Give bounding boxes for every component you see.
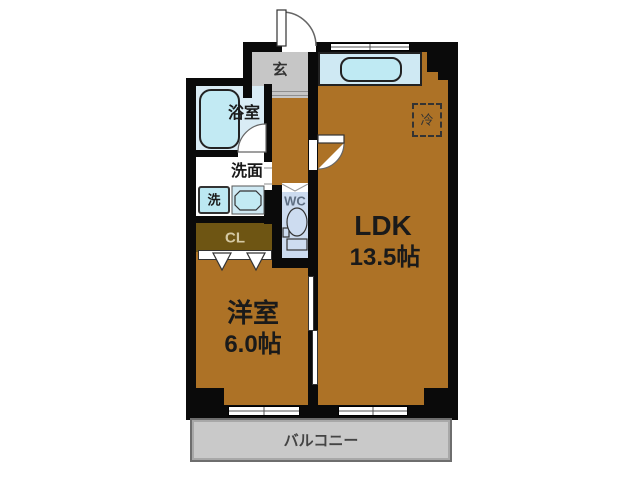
ldk-size-label: 13.5帖: [350, 246, 421, 270]
entrance-door-icon: [277, 10, 316, 46]
entrance-label: 玄: [272, 63, 287, 78]
wc-label: WC: [284, 195, 306, 208]
ldk-window: [338, 406, 408, 416]
wall-entrance-top: [243, 42, 282, 52]
sliding-door-panel-1: [308, 276, 314, 331]
wall-wc-left: [272, 185, 282, 268]
washroom-label: 洗面: [231, 164, 263, 180]
pillar-bottom-right: [424, 388, 458, 405]
refrigerator-label: 冷: [420, 114, 433, 127]
western-room-size-label: 6.0帖: [224, 333, 281, 357]
hallway-floor: [272, 98, 308, 190]
washer-label: 洗: [207, 194, 220, 207]
wall-closet-top: [196, 216, 272, 223]
closet-folding-door: [198, 250, 272, 260]
bathroom-label: 浴室: [228, 106, 260, 122]
kitchen-sink: [340, 57, 402, 82]
wc-door: [282, 183, 308, 192]
sliding-door-panel-2: [312, 330, 318, 385]
wall-bath-right: [264, 84, 272, 224]
pillar-bottom-left: [186, 388, 224, 405]
wall-corner-notch-step: [438, 72, 458, 80]
wall-right: [448, 42, 458, 420]
western-room-window: [228, 406, 300, 416]
wall-left: [186, 78, 196, 420]
floor-plan: 玄 浴室 洗面 洗 WC CL 冷 LDK 13.5帖 洋室 6.0帖 バルコニ…: [0, 0, 640, 480]
wall-bath-bottom: [196, 150, 238, 157]
western-room-label: 洋室: [227, 300, 279, 326]
ldk-label: LDK: [354, 212, 412, 240]
balcony-label: バルコニー: [284, 434, 359, 449]
western-room-floor: [196, 252, 308, 405]
wall-corner-notch: [427, 42, 458, 72]
washroom-door-gap: [264, 162, 272, 190]
ldk-door-gap: [309, 140, 317, 170]
kitchen-window: [330, 43, 410, 51]
bath-door-gap: [238, 150, 264, 157]
wall-top-left: [186, 78, 250, 86]
closet-label: CL: [225, 231, 245, 246]
